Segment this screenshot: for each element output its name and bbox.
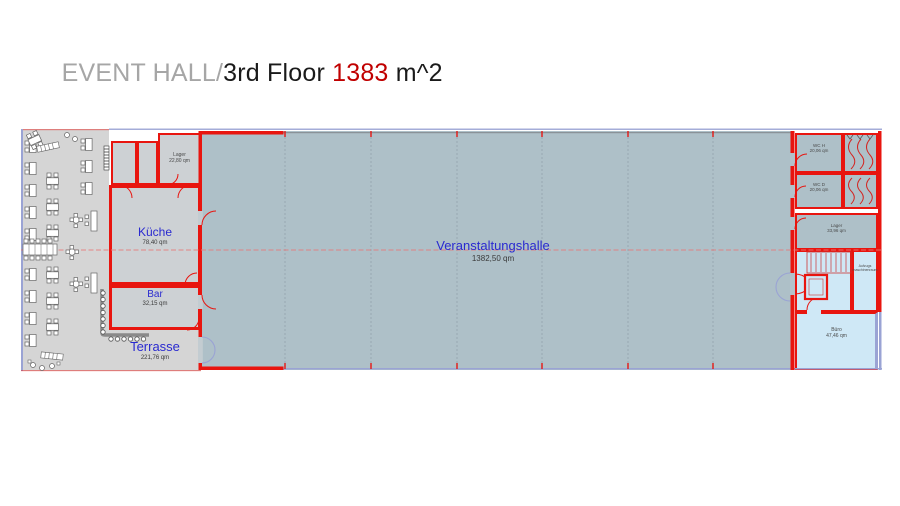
storage-left-area: 22,80 qm	[158, 159, 201, 165]
room-office	[795, 312, 878, 370]
elevator-room-name-line2: maschinenraum	[852, 268, 878, 272]
kitchen-area: 78,40 qm	[109, 240, 201, 247]
room-wc-small-2	[137, 141, 158, 185]
bar-area: 32,15 qm	[109, 301, 201, 308]
room-wc-small-1	[111, 141, 137, 185]
title-floor: 3rd Floor	[223, 59, 332, 87]
title-area-value: 1383	[332, 59, 388, 87]
slide: EVENT HALL/3rd Floor 1383 m^2	[0, 0, 900, 506]
label-wc-h: WC H 20,06 qm	[795, 143, 843, 153]
storage-right-area: 33,96 qm	[795, 228, 878, 233]
label-wc-d: WC D 20,06 qm	[795, 182, 843, 192]
label-bar: Bar 32,15 qm	[109, 289, 201, 307]
wc-d-area: 20,06 qm	[795, 187, 843, 192]
bar-name: Bar	[109, 289, 201, 301]
page-title: EVENT HALL/3rd Floor 1383 m^2	[33, 30, 443, 117]
office-area: 47,46 qm	[795, 334, 878, 340]
kitchen-name: Küche	[109, 226, 201, 240]
room-stairwell	[795, 250, 852, 312]
room-terrace	[21, 129, 109, 371]
title-project: EVENT HALL	[62, 59, 216, 87]
room-wc-d-stalls	[843, 173, 878, 209]
room-wc-h-stalls	[843, 133, 878, 173]
label-kitchen: Küche 78,40 qm	[109, 226, 201, 247]
terrace-area: 221,76 qm	[109, 355, 201, 362]
event-hall-name: Veranstaltungshalle	[373, 239, 613, 254]
label-event-hall: Veranstaltungshalle 1382,50 qm	[373, 239, 613, 263]
wc-h-area: 20,06 qm	[795, 148, 843, 153]
terrace-name: Terrasse	[109, 340, 201, 355]
room-elevator-machine	[852, 250, 878, 312]
label-elevator-machine-room: Aufzugs maschinenraum	[852, 264, 878, 272]
label-storage-left: Lager 22,80 qm	[158, 153, 201, 165]
label-office: Büro 47,46 qm	[795, 328, 878, 340]
title-area-unit: m^2	[389, 59, 443, 87]
label-terrace: Terrasse 221,76 qm	[109, 340, 201, 362]
event-hall-area: 1382,50 qm	[373, 254, 613, 263]
floor-plan: Veranstaltungshalle 1382,50 qm Küche 78,…	[21, 127, 882, 373]
label-storage-right: Lager 33,96 qm	[795, 223, 878, 233]
